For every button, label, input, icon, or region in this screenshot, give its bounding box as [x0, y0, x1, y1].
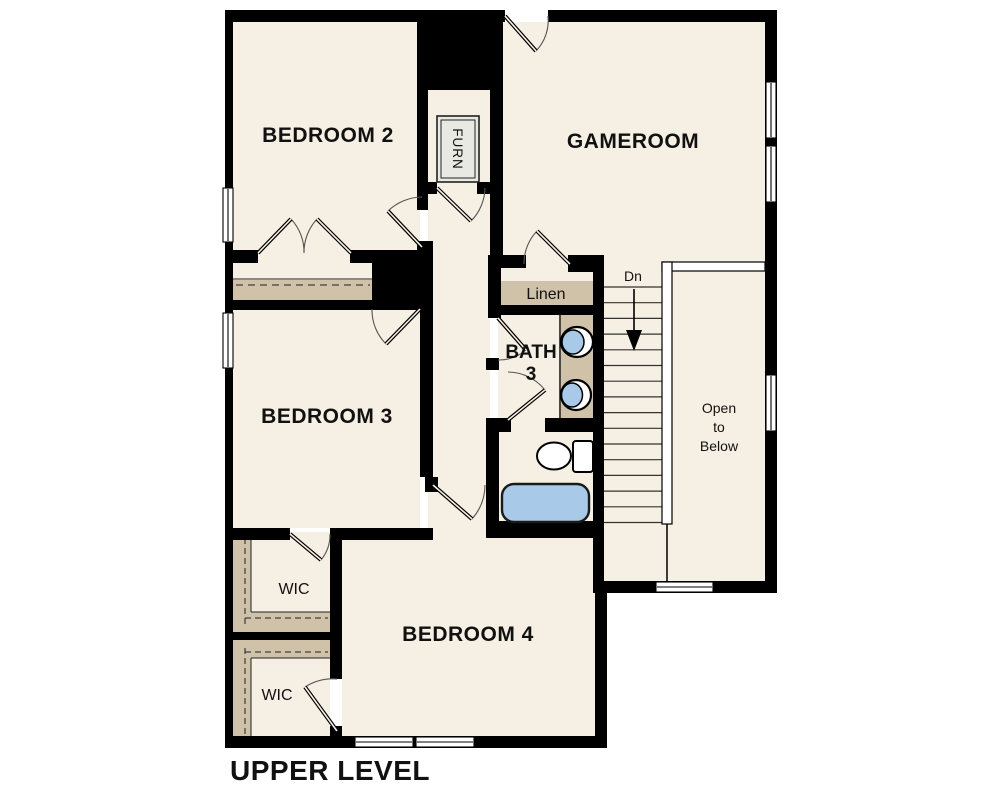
wall-linen-bottom: [488, 305, 604, 315]
wall-top-right: [548, 10, 777, 22]
wall-gameroom-left: [490, 182, 503, 267]
toilet-tank-icon: [573, 441, 593, 472]
wall-bedroom3-bottom-right: [330, 528, 433, 540]
wall-bath-mid-left: [486, 418, 511, 432]
open-to-below-line3: Below: [700, 438, 739, 454]
wall-bedroom3-bottom-left: [225, 528, 290, 540]
wic2-shelf-top: [233, 640, 330, 658]
bedroom3-label: BEDROOM 3: [261, 405, 393, 428]
floor-plan-drawing: BEDROOM 2 GAMEROOM BEDROOM 3 BEDROOM 4 B…: [0, 0, 1000, 800]
wall-wic-column: [330, 528, 342, 679]
wall-closet-jamb-right: [350, 250, 372, 263]
open-to-below-line2: to: [713, 419, 725, 435]
railing-top: [662, 262, 765, 271]
wic-lower-label: WIC: [261, 687, 292, 704]
bathtub-icon: [502, 484, 589, 522]
furn-label: FURN: [450, 128, 465, 170]
wall-closet-jamb-left: [225, 250, 258, 263]
wall-bath-bottom: [486, 521, 604, 538]
bedroom2-closet-shelf: [233, 280, 372, 300]
linen-label: Linen: [526, 286, 565, 303]
floor-plan-page: BEDROOM 2 GAMEROOM BEDROOM 3 BEDROOM 4 B…: [0, 0, 1000, 800]
wall-hall-left: [420, 305, 433, 477]
sink-1-bowl-icon: [562, 330, 584, 354]
stair-dn-label: Dn: [624, 268, 642, 284]
wall-chase: [418, 10, 503, 90]
plan-title: UPPER LEVEL: [230, 755, 430, 786]
wall-bath-left-stub: [486, 358, 499, 370]
wall-bedroom3-top: [225, 300, 373, 310]
gameroom-label: GAMEROOM: [567, 130, 699, 153]
bath3-label-line2: 3: [526, 364, 537, 385]
wall-bath-mid-right: [545, 418, 604, 432]
wall-wic-divider: [225, 632, 342, 640]
wall-bedroom2-right: [417, 18, 428, 210]
bedroom4-label: BEDROOM 4: [402, 623, 534, 646]
sink-2-bowl-icon: [562, 383, 583, 407]
railing-side: [662, 262, 672, 524]
bedroom2-label: BEDROOM 2: [262, 124, 394, 147]
wic1-shelf-bottom: [233, 612, 330, 632]
wall-closet-corner: [372, 250, 433, 310]
wall-furn-jamb-left: [417, 182, 437, 194]
toilet-bowl-icon: [537, 443, 571, 470]
wall-furn-right: [490, 88, 503, 188]
wall-bedroom4-right: [595, 581, 607, 748]
bath3-label-line1: BATH: [505, 342, 556, 363]
open-to-below-line1: Open: [702, 400, 736, 416]
wic-upper-label: WIC: [278, 581, 309, 598]
